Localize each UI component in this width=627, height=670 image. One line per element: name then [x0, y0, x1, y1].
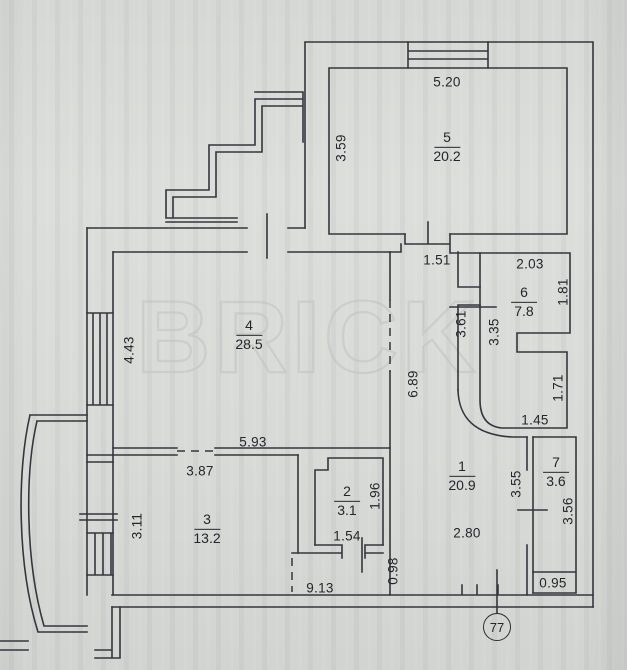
- room4-number: 4: [236, 318, 262, 336]
- dim-0-95: 0.95: [539, 576, 566, 591]
- window-room4: [87, 313, 113, 405]
- bay-window: [21, 415, 87, 632]
- room5-area: 20.2: [433, 148, 460, 165]
- room5-number: 5: [434, 130, 460, 148]
- bottom-wall: [112, 570, 593, 613]
- dim-4-43: 4.43: [122, 336, 137, 363]
- dim-9-13: 9.13: [306, 581, 333, 596]
- dim-0-98: 0.98: [386, 557, 401, 584]
- room-label-5: 5 20.2: [433, 130, 460, 164]
- room7-number: 7: [543, 455, 569, 473]
- room4-area: 28.5: [235, 336, 262, 353]
- dim-1-54: 1.54: [333, 529, 360, 544]
- dim-3-11: 3.11: [130, 513, 145, 539]
- floor-plan-drawing: BRICK: [0, 0, 627, 670]
- room1-area: 20.9: [448, 477, 475, 494]
- room3-number: 3: [194, 512, 220, 530]
- dim-1-51: 1.51: [423, 253, 450, 268]
- dim-2-80: 2.80: [453, 526, 480, 541]
- room-label-2: 2 3.1: [334, 484, 360, 518]
- room-label-1: 1 20.9: [448, 459, 475, 493]
- dim-1-71: 1.71: [551, 374, 566, 401]
- dim-5-20: 5.20: [433, 75, 460, 90]
- dim-2-03: 2.03: [516, 257, 543, 272]
- stairs-wall: [166, 92, 303, 222]
- dim-1-81: 1.81: [556, 278, 571, 305]
- room2-area: 3.1: [334, 502, 360, 519]
- window-top: [408, 42, 488, 68]
- dim-3-55: 3.55: [509, 470, 524, 497]
- left-wall: [87, 228, 113, 595]
- room-label-7: 7 3.6: [543, 455, 569, 489]
- floor-plan-scan: BRICK: [0, 0, 627, 670]
- room-label-3: 3 13.2: [193, 512, 220, 546]
- dim-3-56: 3.56: [561, 497, 576, 524]
- dim-6-89: 6.89: [406, 370, 421, 397]
- room3-area: 13.2: [193, 530, 220, 547]
- passage-walls: [390, 222, 480, 253]
- dim-3-87: 3.87: [186, 464, 213, 479]
- room-label-6: 6 7.8: [511, 285, 537, 319]
- room1-number: 1: [449, 459, 475, 477]
- room-label-4: 4 28.5: [235, 318, 262, 352]
- curved-wall: [458, 390, 527, 437]
- dim-1-96: 1.96: [368, 482, 383, 509]
- dim-1-45: 1.45: [521, 413, 548, 428]
- window-room3: [87, 533, 113, 575]
- room6-number: 6: [511, 285, 537, 303]
- left-wall-ticks: [80, 455, 117, 520]
- room2-number: 2: [334, 484, 360, 502]
- dim-5-93: 5.93: [239, 435, 266, 450]
- room7-area: 3.6: [543, 473, 569, 490]
- room4-top-wall: [87, 214, 390, 258]
- room6-area: 7.8: [511, 303, 537, 320]
- dim-3-35: 3.35: [487, 318, 502, 345]
- dim-3-59: 3.59: [334, 134, 349, 161]
- plan-number-badge: 77: [483, 613, 511, 641]
- brick-watermark: BRICK: [137, 280, 480, 394]
- dim-3-61: 3.61: [454, 310, 469, 337]
